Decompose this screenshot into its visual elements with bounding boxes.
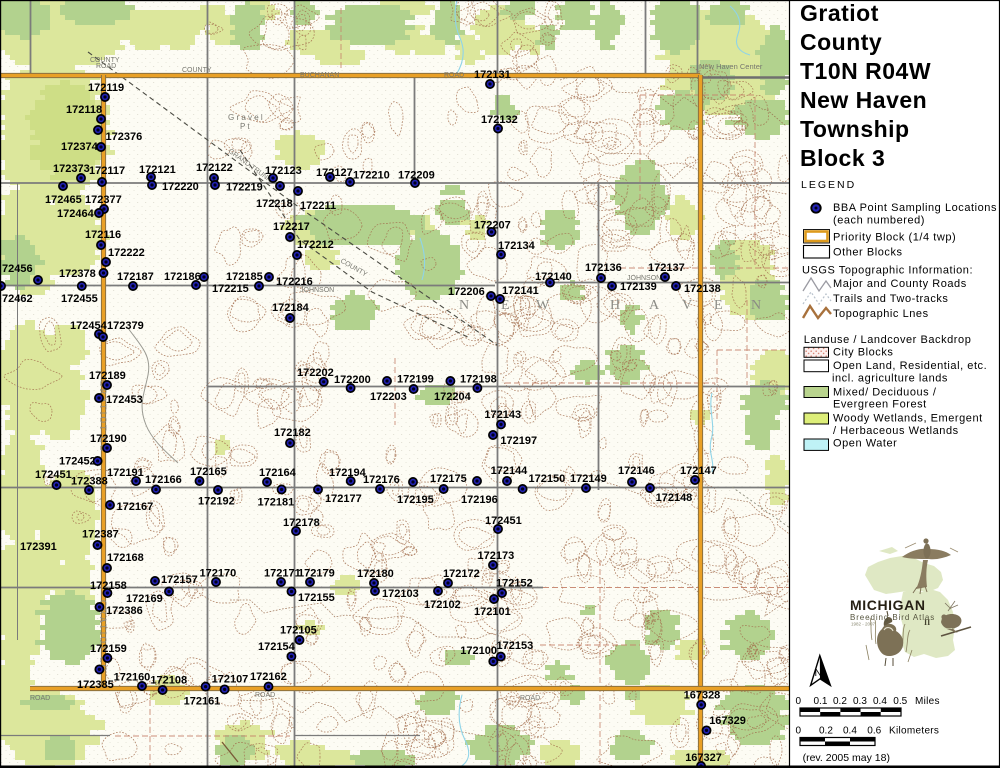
svg-text:172179: 172179 [298, 568, 335, 580]
svg-text:New Haven Center: New Haven Center [699, 62, 763, 71]
svg-text:Township: Township [800, 116, 910, 142]
svg-text:172155: 172155 [298, 592, 335, 604]
svg-text:172181: 172181 [258, 497, 295, 509]
svg-text:172385: 172385 [77, 679, 114, 691]
svg-text:172465: 172465 [45, 194, 82, 206]
svg-text:172150: 172150 [529, 473, 566, 485]
svg-text:172149: 172149 [570, 473, 607, 485]
svg-text:Kilometers: Kilometers [889, 726, 939, 737]
svg-text:Woody Wetlands, Emergent: Woody Wetlands, Emergent [833, 413, 983, 425]
svg-text:172136: 172136 [585, 262, 622, 274]
svg-text:172108: 172108 [150, 675, 187, 687]
svg-text:172137: 172137 [648, 262, 685, 274]
svg-text:II: II [924, 618, 930, 627]
svg-text:incl. agriculture lands: incl. agriculture lands [832, 373, 948, 385]
svg-text:G r a v e l: G r a v e l [228, 113, 263, 122]
svg-text:0.2: 0.2 [819, 726, 833, 737]
svg-text:172187: 172187 [117, 271, 154, 283]
svg-text:172146: 172146 [618, 465, 655, 477]
svg-text:172376: 172376 [106, 131, 143, 143]
svg-text:172154: 172154 [258, 641, 296, 653]
svg-text:172197: 172197 [500, 435, 537, 447]
svg-text:Open Land, Residential, etc.: Open Land, Residential, etc. [833, 360, 987, 372]
svg-text:172138: 172138 [684, 283, 721, 295]
svg-text:172100: 172100 [460, 645, 497, 657]
svg-text:172210: 172210 [353, 170, 390, 182]
svg-text:1982 - 2007: 1982 - 2007 [851, 622, 876, 627]
svg-text:172455: 172455 [61, 293, 98, 305]
svg-text:172184: 172184 [272, 302, 310, 314]
svg-text:172387: 172387 [82, 529, 119, 541]
svg-text:ROAD: ROAD [30, 695, 50, 702]
svg-text:172107: 172107 [212, 674, 249, 686]
svg-text:Miles: Miles [915, 696, 940, 707]
svg-text:172141: 172141 [502, 285, 539, 297]
svg-text:172122: 172122 [196, 162, 233, 174]
svg-text:0.6: 0.6 [867, 726, 881, 737]
svg-text:172131: 172131 [474, 69, 511, 81]
svg-text:172164: 172164 [259, 467, 297, 479]
svg-text:Evergreen Forest: Evergreen Forest [833, 399, 927, 411]
svg-text:172219: 172219 [226, 182, 263, 194]
svg-text:172105: 172105 [280, 625, 317, 637]
svg-text:172217: 172217 [273, 221, 310, 233]
svg-text:COUNTY: COUNTY [182, 67, 212, 74]
svg-text:0.1: 0.1 [814, 696, 828, 707]
svg-text:172190: 172190 [90, 433, 127, 445]
svg-text:Gratiot: Gratiot [800, 0, 879, 26]
svg-text:172386: 172386 [106, 605, 143, 617]
svg-text:JOHNSON: JOHNSON [300, 287, 334, 294]
svg-text:172185: 172185 [226, 271, 263, 283]
svg-text:N: N [815, 667, 823, 679]
svg-text:172148: 172148 [656, 492, 693, 504]
svg-text:172202: 172202 [297, 367, 334, 379]
svg-text:0.2: 0.2 [833, 696, 847, 707]
svg-text:Open Water: Open Water [833, 438, 897, 450]
svg-text:172102: 172102 [424, 599, 461, 611]
svg-text:172222: 172222 [108, 247, 145, 259]
svg-text:172116: 172116 [85, 229, 121, 241]
svg-text:T10N R04W: T10N R04W [800, 58, 931, 84]
svg-text:172144: 172144 [491, 465, 529, 477]
svg-text:172464: 172464 [57, 208, 95, 220]
svg-text:Major and County Roads: Major and County Roads [833, 278, 967, 290]
svg-text:172153: 172153 [497, 640, 534, 652]
svg-text:172451: 172451 [35, 469, 72, 481]
svg-text:0: 0 [796, 726, 802, 737]
svg-text:Landuse / Landcover Backdrop: Landuse / Landcover Backdrop [804, 334, 972, 346]
svg-text:N: N [751, 298, 761, 313]
svg-text:172206: 172206 [448, 286, 485, 298]
svg-text:(each numbered): (each numbered) [833, 215, 925, 227]
svg-text:172166: 172166 [145, 474, 182, 486]
svg-text:172182: 172182 [274, 427, 311, 439]
svg-text:172169: 172169 [126, 593, 163, 605]
svg-text:172452: 172452 [59, 456, 96, 468]
svg-text:72462: 72462 [2, 293, 33, 305]
svg-text:172220: 172220 [162, 181, 199, 193]
svg-text:(rev. 2005 may 18): (rev. 2005 may 18) [803, 752, 890, 764]
svg-text:172161: 172161 [184, 696, 221, 708]
svg-text:172178: 172178 [283, 517, 320, 529]
svg-text:Block 3: Block 3 [800, 145, 885, 171]
svg-text:172192: 172192 [198, 496, 235, 508]
svg-text:172391: 172391 [20, 541, 57, 553]
svg-text:Priority Block (1/4 twp): Priority Block (1/4 twp) [833, 232, 956, 244]
svg-text:ROAD: ROAD [255, 692, 275, 699]
svg-text:172173: 172173 [478, 550, 515, 562]
svg-text:172168: 172168 [107, 552, 144, 564]
svg-text:172199: 172199 [397, 374, 434, 386]
svg-text:172121: 172121 [139, 164, 176, 176]
svg-text:172196: 172196 [461, 494, 498, 506]
svg-text:ROAD: ROAD [96, 63, 116, 70]
svg-text:172204: 172204 [434, 391, 472, 403]
svg-text:172103: 172103 [382, 588, 419, 600]
svg-text:172134: 172134 [498, 240, 536, 252]
svg-text:172195: 172195 [397, 494, 434, 506]
svg-text:0: 0 [796, 696, 802, 707]
svg-text:V: V [682, 298, 692, 313]
svg-text:Topographic Lnes: Topographic Lnes [833, 308, 929, 320]
svg-text:172379: 172379 [107, 320, 144, 332]
svg-text:0.4: 0.4 [843, 726, 857, 737]
svg-text:172175: 172175 [430, 473, 467, 485]
svg-text:172212: 172212 [297, 239, 334, 251]
svg-text:72456: 72456 [2, 263, 33, 275]
svg-text:172165: 172165 [190, 466, 227, 478]
svg-text:167329: 167329 [709, 715, 746, 727]
svg-text:172167: 172167 [117, 501, 154, 513]
svg-text:172203: 172203 [370, 391, 407, 403]
svg-text:0.4: 0.4 [873, 696, 887, 707]
svg-text:Trails and Two-tracks: Trails and Two-tracks [833, 293, 948, 305]
svg-text:172157: 172157 [161, 574, 198, 586]
svg-text:172152: 172152 [496, 578, 533, 590]
svg-text:172216: 172216 [276, 276, 313, 288]
svg-text:MICHIGAN: MICHIGAN [850, 597, 926, 613]
svg-text:167328: 167328 [684, 690, 721, 702]
svg-text:Other Blocks: Other Blocks [833, 247, 903, 259]
svg-text:172211: 172211 [300, 200, 336, 212]
svg-text:172180: 172180 [357, 568, 394, 580]
svg-text:ROAD: ROAD [520, 695, 540, 702]
svg-text:BUCHANAN: BUCHANAN [300, 72, 339, 79]
svg-text:172218: 172218 [256, 198, 293, 210]
svg-text:N: N [459, 298, 469, 313]
svg-text:LEGEND: LEGEND [801, 179, 856, 191]
svg-text:172162: 172162 [250, 671, 287, 683]
svg-text:172143: 172143 [484, 409, 521, 421]
svg-text:172118: 172118 [66, 104, 102, 116]
svg-text:0.3: 0.3 [853, 696, 867, 707]
svg-text:/ Herbaceous Wetlands: / Herbaceous Wetlands [833, 425, 959, 437]
svg-text:172176: 172176 [363, 474, 400, 486]
svg-text:H: H [610, 298, 620, 313]
svg-text:A: A [649, 298, 660, 313]
svg-text:172147: 172147 [680, 465, 717, 477]
svg-text:172215: 172215 [212, 283, 249, 295]
svg-text:W: W [536, 298, 550, 313]
svg-text:County: County [800, 29, 882, 55]
svg-text:172373: 172373 [53, 163, 90, 175]
svg-text:Mixed/ Deciduous /: Mixed/ Deciduous / [833, 387, 937, 399]
svg-text:172139: 172139 [620, 281, 657, 293]
svg-text:172378: 172378 [59, 268, 96, 280]
svg-text:172160: 172160 [114, 672, 151, 684]
svg-text:172451: 172451 [485, 515, 522, 527]
svg-text:BBA Point Sampling Locations: BBA Point Sampling Locations [833, 202, 997, 214]
svg-text:New Haven: New Haven [800, 87, 927, 113]
svg-text:172101: 172101 [474, 606, 511, 618]
svg-text:172177: 172177 [325, 493, 362, 505]
svg-text:172117: 172117 [89, 165, 125, 177]
svg-text:ROAD: ROAD [444, 72, 464, 79]
svg-text:172374: 172374 [61, 141, 99, 153]
svg-text:USGS Topographic Information:: USGS Topographic Information: [802, 265, 973, 277]
svg-text:City Blocks: City Blocks [833, 347, 893, 359]
svg-text:172453: 172453 [106, 394, 143, 406]
svg-text:P t: P t [240, 122, 250, 131]
svg-text:0.5: 0.5 [893, 696, 907, 707]
svg-text:E: E [714, 298, 723, 313]
